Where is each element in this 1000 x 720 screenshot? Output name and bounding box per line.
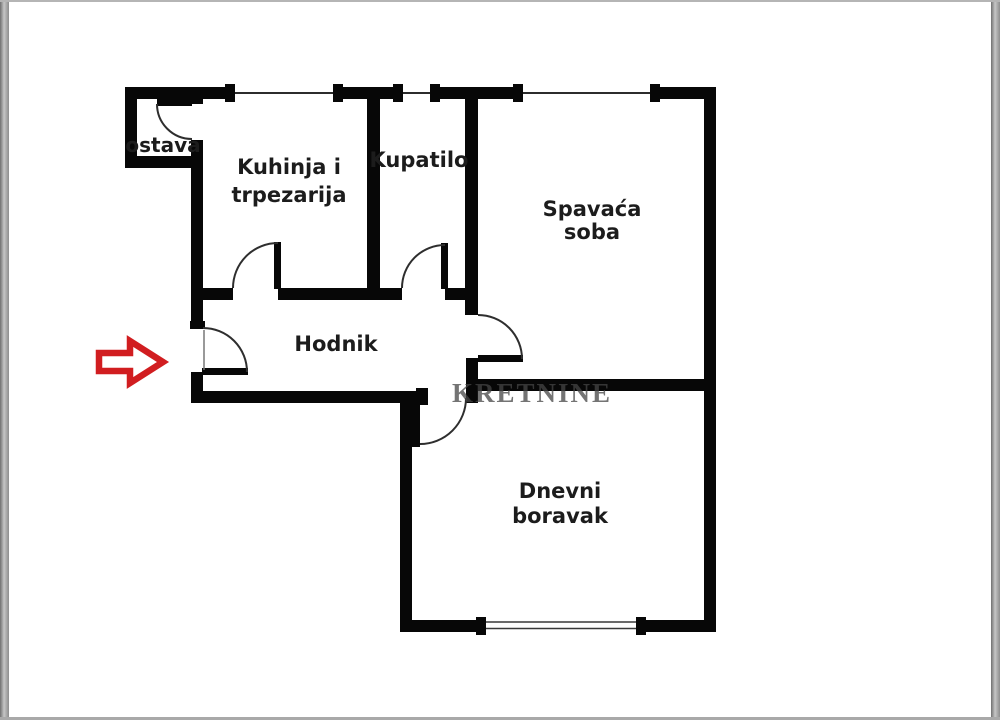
image-frame-left: [0, 0, 9, 720]
wall-segment: [191, 288, 233, 300]
door-arc: [233, 243, 278, 288]
door-leaf: [202, 368, 248, 375]
wall-segment: [400, 391, 412, 632]
wall-segment: [191, 87, 203, 104]
room-label-kupatilo: Kupatilo: [370, 148, 469, 172]
wall-segment: [445, 288, 478, 300]
room-label-dnevni-line2: boravak: [512, 504, 609, 528]
floor-plan-image: KRETNINE ostava Kuhinja i trpezarija Kup…: [0, 0, 1000, 720]
wall-segment: [191, 391, 420, 403]
window-cap: [333, 84, 343, 102]
wall-segment: [190, 321, 205, 329]
door-hinge-cap: [416, 388, 428, 405]
wall-segment: [125, 87, 230, 99]
room-label-kuhinja-line1: Kuhinja i: [237, 155, 341, 179]
wall-segment: [465, 87, 478, 315]
door-arc: [402, 245, 445, 288]
image-frame-top: [0, 0, 1000, 2]
room-label-spavaca-line2: soba: [564, 220, 620, 244]
window-cap: [650, 84, 660, 102]
wall-segment: [367, 87, 380, 299]
window-cap: [513, 84, 523, 102]
room-label-hodnik: Hodnik: [294, 332, 378, 356]
window-cap: [225, 84, 235, 102]
wall-segment: [278, 288, 402, 300]
room-label-ostava: ostava: [125, 133, 200, 157]
room-label-kuhinja-line2: trpezarija: [232, 183, 347, 207]
watermark-text: KRETNINE: [452, 378, 612, 408]
door-leaf: [478, 355, 523, 362]
image-frame-right: [991, 0, 1000, 720]
door-arc: [203, 328, 247, 372]
room-label-spavaca-line1: Spavaća: [543, 197, 642, 221]
window-cap: [636, 617, 646, 635]
room-label-dnevni-line1: Dnevni: [519, 479, 601, 503]
window-cap: [430, 84, 440, 102]
window-cap: [476, 617, 486, 635]
floor-plan-svg: KRETNINE ostava Kuhinja i trpezarija Kup…: [0, 0, 1000, 720]
wall-segment: [400, 620, 481, 632]
wall-segment: [704, 87, 716, 632]
arrow-right-icon: [99, 341, 163, 383]
door-arc: [478, 315, 522, 359]
door-leaf: [274, 242, 281, 289]
door-leaf: [157, 99, 192, 106]
wall-segment: [641, 620, 716, 632]
window-cap: [393, 84, 403, 102]
door-leaf: [441, 243, 448, 289]
